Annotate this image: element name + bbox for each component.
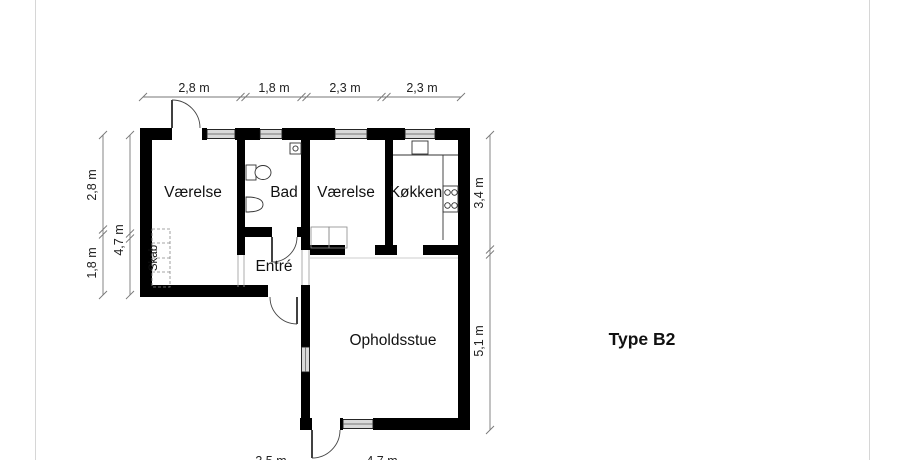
dim-bottom-2: 4,7 m — [366, 454, 397, 460]
floor-plan-page: Værelse Bad Værelse Køkken Entré Opholds… — [0, 0, 905, 460]
bathroom-fixtures — [246, 143, 301, 212]
room-label-vaerelse-2: Værelse — [317, 184, 375, 201]
entre-exterior-door — [270, 297, 297, 324]
page-edge-lines — [36, 0, 870, 460]
walls — [140, 128, 470, 430]
room-label-vaerelse-1: Værelse — [164, 184, 222, 201]
opholdsstue-balcony-door — [312, 430, 340, 458]
stove-icon — [443, 186, 458, 212]
dim-left-outer-1: 2,8 m — [85, 169, 99, 200]
room-label-bad: Bad — [270, 184, 298, 201]
dim-left-outer-2: 1,8 m — [85, 247, 99, 278]
room-label-skab: Skab — [148, 245, 160, 271]
dim-bottom-1: 3,5 m — [255, 454, 286, 460]
dim-right-2: 5,1 m — [472, 325, 486, 356]
floor-plan-drawing: Værelse Bad Værelse Køkken Entré Opholds… — [0, 0, 905, 460]
doors — [172, 100, 340, 458]
entrance-door-top — [172, 100, 200, 128]
dim-top-3: 2,3 m — [329, 81, 360, 95]
kitchen-sink-icon — [412, 141, 428, 154]
vaerelse2-closet — [311, 227, 347, 248]
dim-right-1: 3,4 m — [472, 177, 486, 208]
toilet-icon — [246, 165, 256, 180]
dim-top-2: 1,8 m — [258, 81, 289, 95]
dim-top-4: 2,3 m — [406, 81, 437, 95]
room-label-entre: Entré — [255, 258, 292, 275]
dim-top-1: 2,8 m — [178, 81, 209, 95]
room-label-koekken: Køkken — [390, 184, 443, 201]
room-label-opholdsstue: Opholdsstue — [349, 332, 436, 349]
plan-title: Type B2 — [609, 329, 676, 349]
dim-left-inner: 4,7 m — [112, 224, 126, 255]
sink-icon — [246, 197, 263, 212]
